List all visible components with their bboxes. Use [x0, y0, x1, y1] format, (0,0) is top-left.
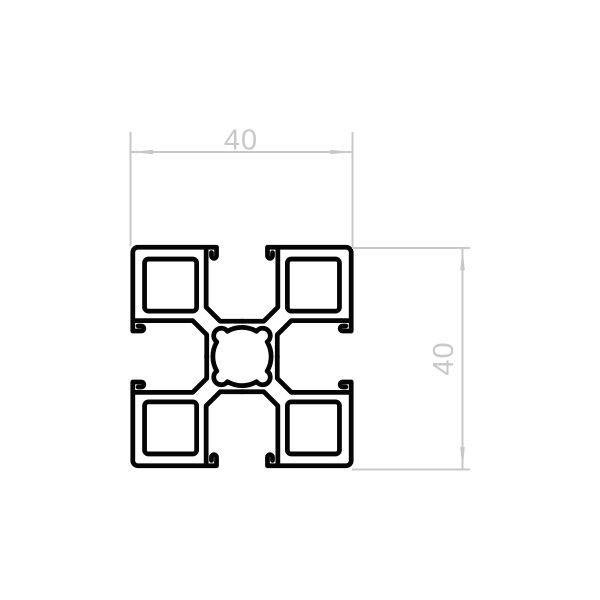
profile-quadrant-bottom-left [133, 355, 243, 465]
profile-quadrant-bottom-right [241, 355, 351, 465]
technical-drawing-canvas: 40 40 [0, 0, 600, 600]
center-screw-hole [213, 327, 271, 385]
height-dimension-label: 40 [428, 341, 460, 375]
dimension-lines [131, 132, 471, 470]
height-arrow-bottom-icon [460, 447, 465, 470]
extrusion-profile-cross-section [133, 247, 351, 465]
height-arrow-top-icon [460, 248, 465, 271]
corner-square-hollow [145, 259, 197, 311]
dimension-annotations: 40 40 [131, 125, 465, 470]
profile-quadrant [133, 247, 243, 357]
width-arrow-right-icon [330, 150, 353, 155]
width-arrow-left-icon [131, 150, 154, 155]
width-dimension-label: 40 [224, 125, 258, 157]
profile-quadrant-top-right [241, 247, 351, 357]
drawing-page: 40 40 [0, 0, 600, 600]
